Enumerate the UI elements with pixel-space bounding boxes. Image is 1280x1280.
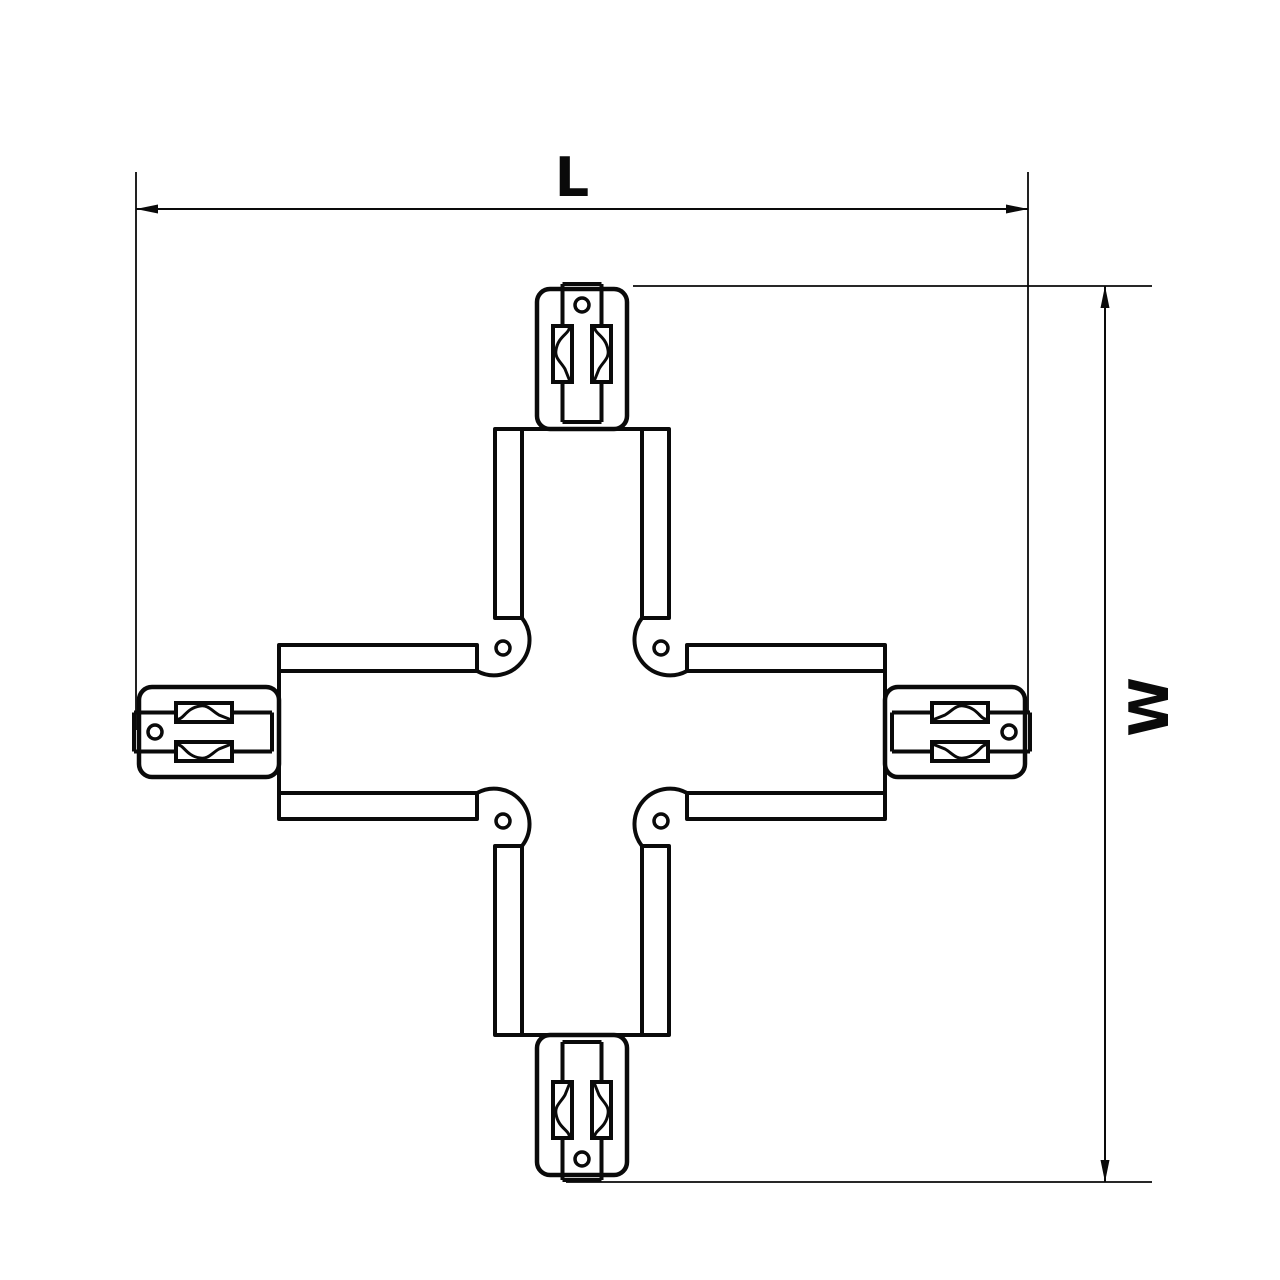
dimension-l-arrow-left	[136, 205, 158, 214]
dimension-w-arrow-top	[1101, 286, 1110, 308]
technical-drawing-page: L W	[0, 0, 1280, 1280]
screw-hole-bottom-left	[496, 814, 510, 828]
plug-connector-top	[537, 284, 627, 429]
screw-hole-top-left	[496, 641, 510, 655]
dimension-w-label: W	[1118, 677, 1181, 737]
plug-connector-bottom	[537, 1035, 627, 1180]
screw-hole-top-right	[654, 641, 668, 655]
dimension-w-arrow-bottom	[1101, 1160, 1110, 1182]
dimension-l-arrow-right	[1006, 205, 1028, 214]
screw-hole-bottom-right	[654, 814, 668, 828]
connector-diagram: L W	[0, 0, 1280, 1280]
plug-connector-right	[885, 687, 1030, 777]
plug-connector-left	[134, 687, 279, 777]
cross-body-outline	[279, 429, 885, 1035]
dimension-l-label: L	[555, 146, 589, 209]
